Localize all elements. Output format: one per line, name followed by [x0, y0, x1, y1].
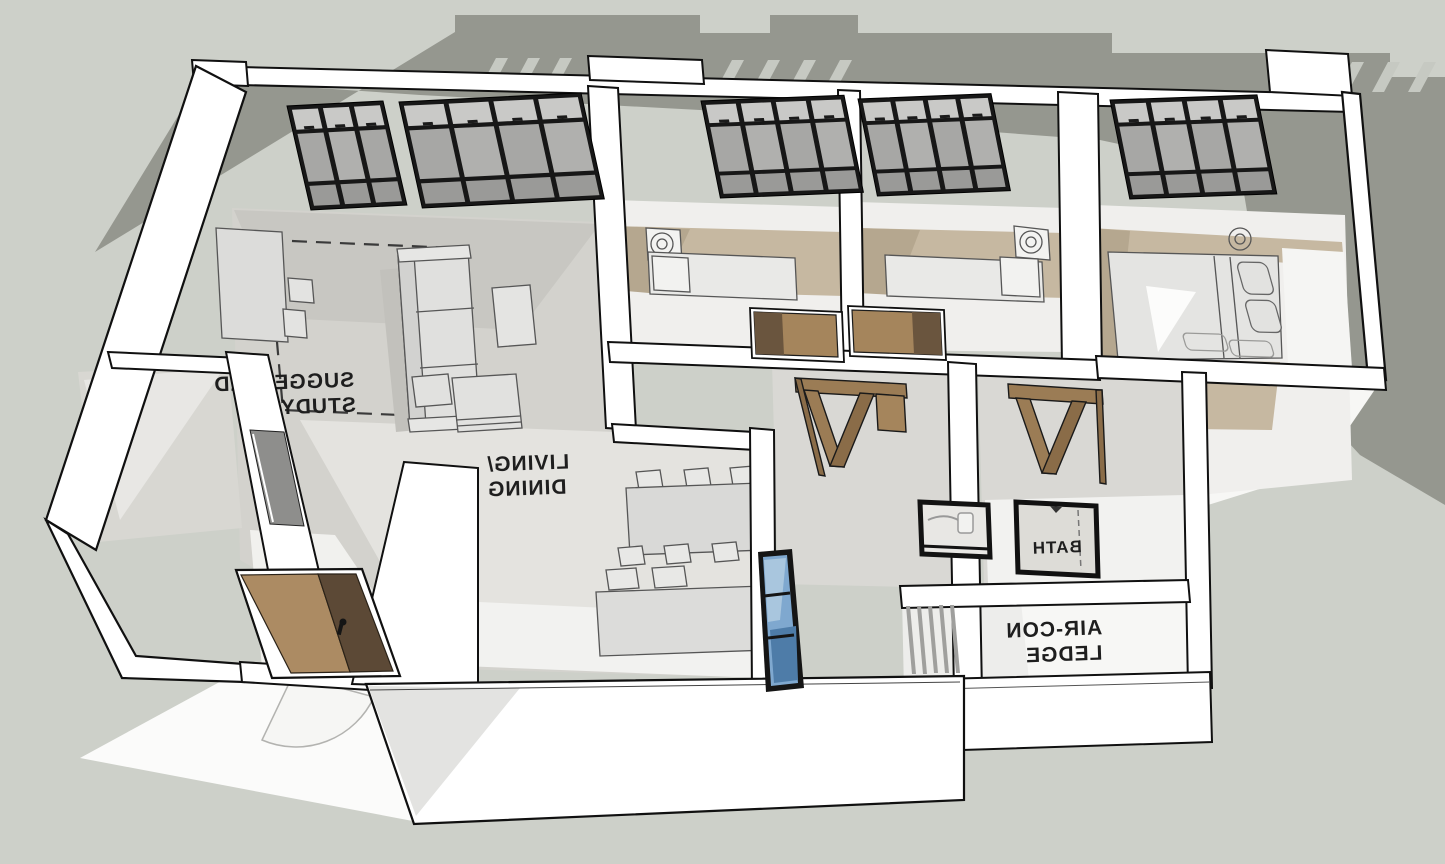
bifold-panel [876, 394, 906, 432]
living-window-2 [399, 93, 604, 208]
bedroom2-window [858, 94, 1010, 196]
rect-shape [467, 120, 478, 124]
rect-shape [1128, 119, 1139, 122]
rect-shape [466, 179, 510, 201]
rect-shape [755, 173, 789, 193]
rect-shape [423, 122, 434, 126]
bedroom2-master-wall [1058, 92, 1102, 370]
rect-shape [510, 177, 554, 199]
rect-shape [366, 123, 377, 127]
rect-shape [421, 181, 465, 203]
rect-shape [825, 170, 859, 190]
bedroom2-door-shade [912, 312, 942, 355]
rect-shape [304, 126, 315, 130]
label-bath: BATH [1032, 537, 1083, 558]
rect-shape [974, 169, 1005, 188]
coffee-table [492, 285, 536, 347]
rect-shape [309, 185, 340, 206]
rect-shape [1236, 115, 1247, 118]
rect-shape [972, 114, 983, 117]
label-study-line2: STUDY [279, 394, 356, 420]
pillow [1000, 257, 1040, 297]
rect-shape [940, 115, 951, 118]
bedroom1-window [701, 95, 863, 198]
rect-shape [907, 116, 918, 119]
windows [287, 93, 1277, 210]
dining-chair [712, 542, 739, 562]
rect-shape [1164, 118, 1175, 121]
pillow [652, 256, 690, 292]
ottoman [412, 374, 452, 407]
rect-shape [371, 181, 402, 202]
rect-shape [1237, 171, 1272, 191]
rect-shape [790, 172, 824, 192]
floorplan-svg: SUGGESTED STUDY LIVING/ DINING [0, 0, 1445, 864]
parapet-block-right [1266, 50, 1352, 96]
rect-shape [340, 183, 371, 204]
rect-shape [1165, 174, 1200, 194]
label-living-line2: DINING [487, 476, 567, 502]
toilet-tank [958, 513, 973, 533]
kitchen-island [596, 586, 768, 656]
armchair [452, 374, 522, 432]
dining-table [626, 483, 764, 555]
master-floor-right-lit [1282, 248, 1352, 368]
rect-shape [1200, 116, 1211, 119]
kitchen-stool [606, 568, 639, 590]
study-chair [288, 278, 314, 303]
rect-shape [877, 172, 908, 191]
rect-shape [1129, 175, 1164, 195]
rect-shape [555, 175, 599, 197]
label-aircon-line2: LEDGE [1025, 642, 1103, 668]
rect-shape [720, 174, 754, 194]
parapet-block-mid [588, 56, 704, 84]
ledge-back-wall [900, 580, 1190, 608]
rect-shape [512, 117, 523, 121]
rect-shape [719, 119, 730, 122]
bath-east-wall [1182, 372, 1212, 688]
rect-shape [1201, 172, 1236, 192]
master-window [1110, 95, 1277, 199]
dining-chair [664, 544, 691, 564]
study-chair [283, 309, 307, 338]
label-aircon-line1: AIR-CON [1005, 616, 1103, 642]
bathroom-window [920, 502, 990, 557]
bedroom1-door-shade [754, 312, 784, 355]
rect-shape [335, 124, 346, 128]
label-living-line1: LIVING/ [486, 451, 570, 477]
rect-shape [789, 117, 800, 120]
rect-shape [754, 118, 765, 121]
dining-chair [618, 546, 645, 566]
study-desk [216, 228, 288, 342]
rect-shape [875, 117, 886, 120]
rect-shape [824, 115, 835, 118]
rect-shape [942, 170, 973, 189]
kitchen-stool [652, 566, 687, 588]
floorplan-render: SUGGESTED STUDY LIVING/ DINING [0, 0, 1445, 864]
rect-shape [909, 171, 940, 190]
rect-shape [557, 115, 568, 119]
